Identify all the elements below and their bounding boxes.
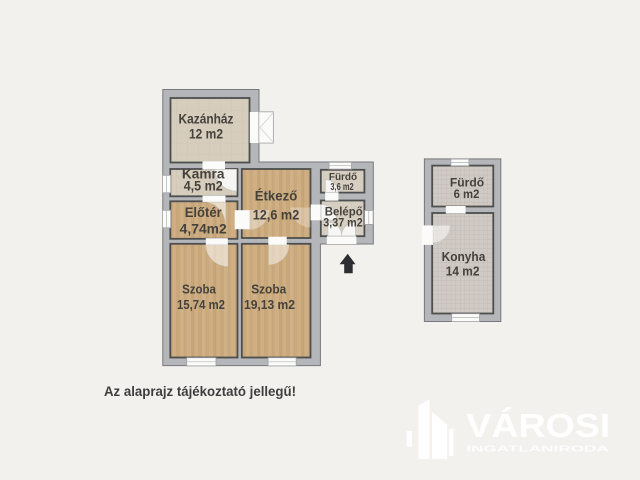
svg-text:3,37 m2: 3,37 m2	[323, 215, 363, 229]
svg-text:19,13 m2: 19,13 m2	[244, 298, 295, 312]
svg-text:12 m2: 12 m2	[189, 127, 223, 142]
svg-text:4,74m2: 4,74m2	[180, 222, 227, 237]
svg-text:3,6 m2: 3,6 m2	[330, 181, 353, 193]
svg-text:15,74 m2: 15,74 m2	[177, 298, 225, 312]
svg-text:14 m2: 14 m2	[446, 264, 480, 279]
svg-text:Szoba: Szoba	[182, 283, 217, 297]
svg-text:6 m2: 6 m2	[454, 187, 480, 201]
svg-text:VÁROSI: VÁROSI	[466, 407, 610, 444]
svg-text:INGATLANIRODA: INGATLANIRODA	[466, 445, 609, 454]
svg-text:Előtér: Előtér	[185, 205, 223, 220]
svg-text:Kazánház: Kazánház	[179, 112, 234, 127]
svg-text:4,5 m2: 4,5 m2	[184, 179, 223, 194]
svg-text:Az alaprajz tájékoztató jelleg: Az alaprajz tájékoztató jellegű!	[104, 384, 296, 399]
svg-text:Szoba: Szoba	[251, 283, 287, 297]
svg-text:Étkező: Étkező	[255, 189, 298, 204]
svg-text:Konyha: Konyha	[442, 249, 486, 264]
svg-text:12,6 m2: 12,6 m2	[253, 208, 300, 223]
